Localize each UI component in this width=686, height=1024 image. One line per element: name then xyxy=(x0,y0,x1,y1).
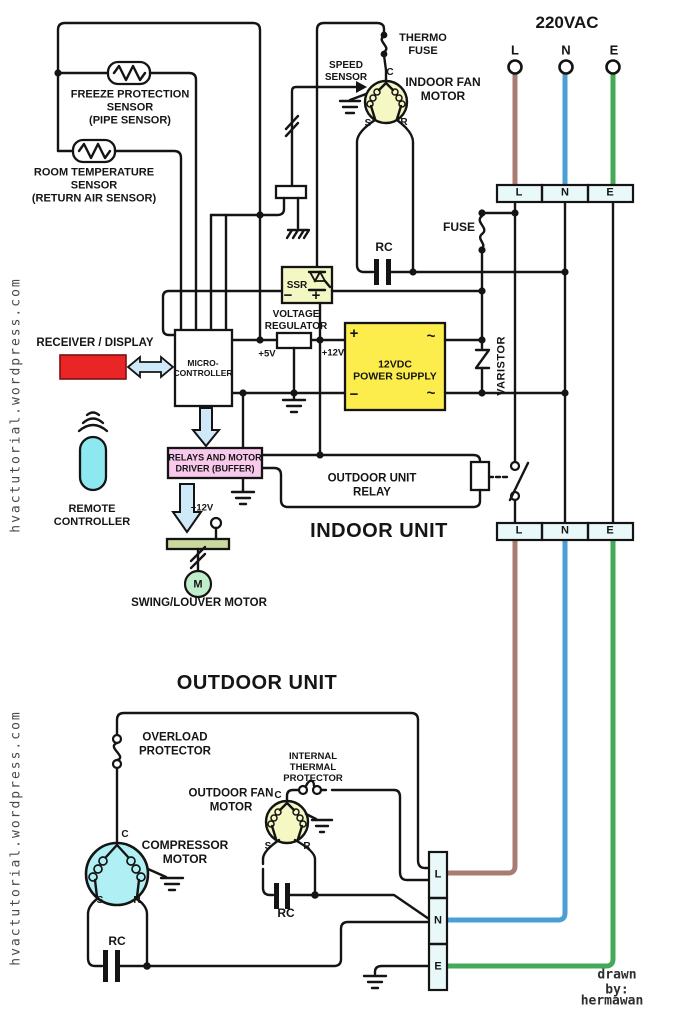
receiver-display-box xyxy=(60,355,126,379)
speed-sensor-label: SPEED SENSOR xyxy=(325,60,367,84)
comp-s-label: S xyxy=(97,895,104,907)
comp-c-label: C xyxy=(121,829,128,841)
plus12v-terminal-icon xyxy=(211,518,221,528)
fan-s-label: S xyxy=(365,118,372,130)
outdoor-relay-label: OUTDOOR UNIT RELAY xyxy=(328,472,417,499)
watermark-left-top: hvactutorial.wordpress.com xyxy=(8,277,23,533)
terminal-l-icon xyxy=(509,61,522,74)
outdoor-unit-title: OUTDOOR UNIT xyxy=(177,672,337,696)
varistor-label: VARISTOR xyxy=(496,336,509,396)
ofm-r-label: R xyxy=(303,841,310,853)
rc-compressor-label: RC xyxy=(108,934,125,948)
ssr-minus-label: − xyxy=(284,287,293,305)
remote-controller-label: REMOTE CONTROLLER xyxy=(54,503,130,529)
ssr-plus-label: + xyxy=(312,287,321,305)
watermark-left-bottom: hvactutorial.wordpress.com xyxy=(8,710,23,966)
outdoor-wiring xyxy=(86,713,429,988)
comp-r-label: R xyxy=(133,895,140,907)
terminal-e-label: E xyxy=(610,42,619,57)
swing-motor-label: SWING/LOUVER MOTOR xyxy=(131,597,267,611)
indoor-unit-title: INDOOR UNIT xyxy=(310,520,448,544)
remote-controller-icon xyxy=(80,437,106,490)
thermal-protector-label: INTERNAL THERMAL PROTECTOR xyxy=(283,751,342,785)
strip3-l-label: L xyxy=(435,869,442,882)
room-sensor-label: ROOM TEMPERATURE SENSOR (RETURN AIR SENS… xyxy=(32,167,156,206)
rc-indoor-label: RC xyxy=(375,240,392,254)
overload-protector-label: OVERLOAD PROTECTOR xyxy=(139,731,211,758)
compressor-motor-label: COMPRESSOR MOTOR xyxy=(142,838,229,866)
strip1-e-label: E xyxy=(606,187,613,200)
fan-c-label: C xyxy=(386,67,393,79)
terminal-n-label: N xyxy=(561,42,570,57)
plus5v-label: +5V xyxy=(258,348,275,359)
strip3-n-label: N xyxy=(434,915,442,928)
psu-minus-label: − xyxy=(350,386,359,404)
thermo-fuse-label: THERMO FUSE xyxy=(399,32,447,58)
hvac-wiring-diagram: hvactutorial.wordpress.com hvactutorial.… xyxy=(0,0,686,1024)
fuse-label: FUSE xyxy=(443,220,475,234)
indoor-fan-motor-label: INDOOR FAN MOTOR xyxy=(405,75,480,103)
strip1-n-label: N xyxy=(561,187,569,200)
microcontroller-label: MICRO- CONTROLLER xyxy=(173,358,232,378)
psu-plus-label: + xyxy=(350,325,359,343)
relay-driver-label: RELAYS AND MOTOR DRIVER (BUFFER) xyxy=(168,452,261,473)
bidirectional-arrow-icon xyxy=(128,357,173,377)
strip1-l-label: L xyxy=(516,187,523,200)
mains-voltage-label: 220VAC xyxy=(536,13,599,33)
strip2-e-label: E xyxy=(606,525,613,538)
swing-plus12v-label: +12V xyxy=(191,502,213,513)
receiver-display-label: RECEIVER / DISPLAY xyxy=(36,337,153,351)
ofm-s-label: S xyxy=(265,841,272,853)
ofm-c-label: C xyxy=(274,790,281,802)
strip2-l-label: L xyxy=(516,525,523,538)
plus12v-label: +12V xyxy=(322,347,344,358)
power-supply-label: 12VDC POWER SUPPLY xyxy=(353,359,437,384)
psu-ac1-label: ~ xyxy=(427,328,436,346)
swing-m-label: M xyxy=(193,579,202,592)
author-label: hermawan xyxy=(581,993,644,1008)
rc-ofm-label: RC xyxy=(277,906,294,920)
freeze-sensor-label: FREEZE PROTECTION SENSOR (PIPE SENSOR) xyxy=(71,89,190,128)
terminal-e-icon xyxy=(607,61,620,74)
psu-ac2-label: ~ xyxy=(427,385,436,403)
strip2-n-label: N xyxy=(561,525,569,538)
fan-r-label: R xyxy=(400,117,407,129)
outdoor-fan-motor-label: OUTDOOR FAN MOTOR xyxy=(189,787,274,814)
arrow-down-icon xyxy=(193,408,219,446)
terminal-l-label: L xyxy=(511,42,519,57)
terminal-n-icon xyxy=(560,61,573,74)
voltage-regulator-label: VOLTAGE REGULATOR xyxy=(265,309,327,333)
strip3-e-label: E xyxy=(434,961,441,974)
